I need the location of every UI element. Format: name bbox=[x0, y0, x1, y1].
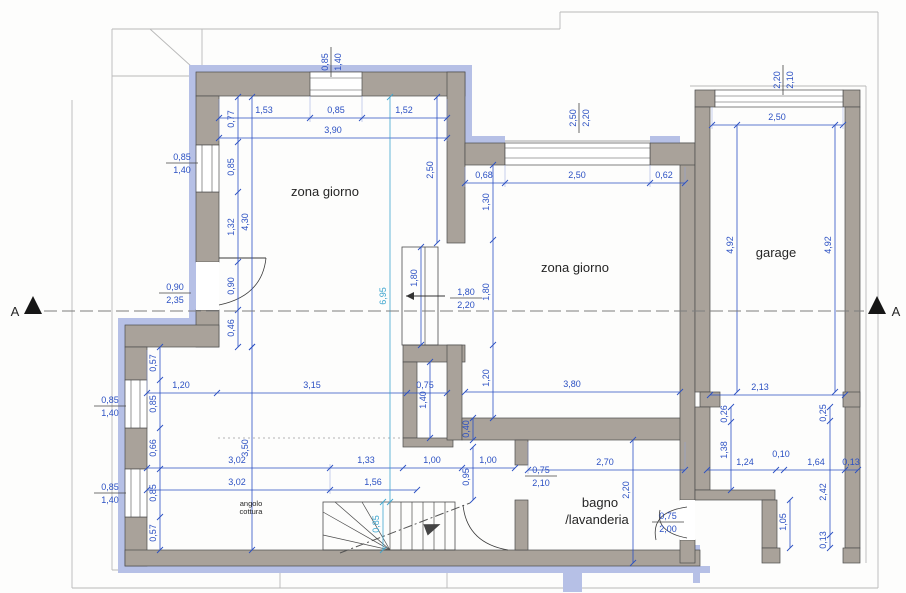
dim-label: 3,15 bbox=[303, 380, 321, 390]
insulation-band bbox=[563, 566, 582, 592]
dim-fraction-bottom: 2,00 bbox=[659, 524, 677, 534]
window bbox=[715, 90, 843, 107]
dim-label: 2,50 bbox=[568, 170, 586, 180]
dim-fraction-bottom: 2,10 bbox=[785, 71, 795, 89]
section-letter-left: A bbox=[11, 304, 20, 319]
wall bbox=[125, 347, 147, 380]
wall bbox=[515, 500, 528, 550]
window bbox=[125, 469, 147, 517]
wall bbox=[700, 392, 720, 407]
dim-label: 0,68 bbox=[475, 170, 493, 180]
dim-label: 3,90 bbox=[324, 125, 342, 135]
dim-label: 1,64 bbox=[807, 457, 825, 467]
dim-label: 0,75 bbox=[416, 380, 434, 390]
wall bbox=[680, 143, 695, 500]
wall bbox=[695, 490, 775, 500]
passage-arrow-icon bbox=[406, 292, 414, 300]
dim-label: 0,85 bbox=[226, 158, 236, 176]
wall bbox=[695, 107, 710, 392]
floor-plan-canvas: 1,530,851,523,900,682,500,622,501,203,15… bbox=[0, 0, 906, 593]
dim-label: 6,95 bbox=[378, 287, 388, 305]
dim-label: 0,77 bbox=[226, 110, 236, 128]
dim-fraction-top: 2,20 bbox=[772, 71, 782, 89]
dim-label: 0,85 bbox=[148, 484, 158, 502]
door-swing-arc bbox=[463, 505, 508, 550]
window bbox=[196, 145, 219, 192]
dim-label: 2,13 bbox=[751, 382, 769, 392]
dim-label: 4,30 bbox=[240, 213, 250, 231]
room-label: zona giorno bbox=[541, 260, 609, 275]
dim-fraction-bottom: 1,40 bbox=[101, 495, 119, 505]
stair-winder-line bbox=[335, 502, 390, 550]
dim-label: 0,62 bbox=[655, 170, 673, 180]
dim-label: 2,50 bbox=[425, 161, 435, 179]
dim-label: 3,80 bbox=[563, 379, 581, 389]
dim-label: 1,32 bbox=[226, 218, 236, 236]
wall bbox=[680, 540, 695, 563]
insulation-band bbox=[118, 566, 710, 573]
wall bbox=[196, 192, 219, 262]
dim-label: 1,52 bbox=[395, 105, 413, 115]
door-opening bbox=[680, 500, 695, 540]
room-label: garage bbox=[756, 245, 796, 260]
dim-fraction-bottom: 2,20 bbox=[457, 300, 475, 310]
stair-direction-arrow-icon bbox=[423, 519, 442, 536]
dim-fraction-bottom: 1,40 bbox=[101, 408, 119, 418]
wall bbox=[465, 143, 505, 165]
dim-fraction-top: 1,80 bbox=[457, 287, 475, 297]
stair-direction-line bbox=[340, 503, 470, 553]
dim-label: 2,20 bbox=[621, 481, 631, 499]
dim-label: 1,38 bbox=[719, 441, 729, 459]
dim-fraction-bottom: 2,20 bbox=[581, 109, 591, 127]
room-label: /lavanderia bbox=[565, 512, 629, 527]
dim-label: 1,05 bbox=[778, 513, 788, 531]
wall bbox=[515, 440, 528, 465]
dim-fraction-top: 0,85 bbox=[101, 395, 119, 405]
dim-label: 0,85 bbox=[327, 105, 345, 115]
dim-label: 1,33 bbox=[357, 455, 375, 465]
dim-label: 1,20 bbox=[481, 369, 491, 387]
wall bbox=[845, 107, 860, 548]
wall bbox=[843, 548, 860, 563]
dim-label: 2,42 bbox=[818, 483, 828, 501]
dim-fraction-top: 0,90 bbox=[166, 282, 184, 292]
room-label: zona giorno bbox=[291, 184, 359, 199]
wall bbox=[843, 90, 860, 107]
dim-label: 0,85 bbox=[371, 515, 381, 533]
dim-label: 4,92 bbox=[823, 236, 833, 254]
dim-label: 2,70 bbox=[596, 457, 614, 467]
room-label: cottura bbox=[240, 507, 264, 516]
window bbox=[310, 72, 362, 96]
wall bbox=[762, 548, 780, 563]
wall bbox=[125, 325, 219, 347]
dim-label: 0,10 bbox=[772, 449, 790, 459]
dim-label: 0,85 bbox=[148, 395, 158, 413]
insulation-band bbox=[650, 136, 680, 143]
wall bbox=[403, 362, 417, 438]
wall bbox=[447, 72, 465, 243]
wall bbox=[462, 418, 693, 440]
wall bbox=[125, 550, 700, 566]
dim-label: 0,13 bbox=[818, 531, 828, 549]
window bbox=[505, 143, 650, 165]
dim-label: 1,00 bbox=[479, 455, 497, 465]
dim-label: 0,57 bbox=[148, 524, 158, 542]
wall bbox=[125, 428, 147, 469]
dim-label: 1,80 bbox=[481, 283, 491, 301]
window bbox=[125, 380, 147, 428]
dim-fraction-bottom: 1,40 bbox=[173, 165, 191, 175]
insulation-band bbox=[465, 65, 472, 143]
section-letter-right: A bbox=[892, 304, 901, 319]
dim-label: 1,00 bbox=[423, 455, 441, 465]
room-label: bagno bbox=[582, 495, 618, 510]
dim-label: 1,20 bbox=[172, 380, 190, 390]
section-marker-left-icon bbox=[24, 296, 42, 314]
wall bbox=[447, 345, 462, 440]
insulation-band bbox=[118, 318, 125, 573]
dim-label: 0,46 bbox=[226, 319, 236, 337]
dim-label: 0,25 bbox=[818, 404, 828, 422]
dim-label: 1,40 bbox=[418, 391, 428, 409]
dim-label: 1,24 bbox=[736, 457, 754, 467]
floor-plan-page: 1,530,851,523,900,682,500,622,501,203,15… bbox=[0, 0, 906, 593]
dim-label: 3,50 bbox=[240, 439, 250, 457]
dim-fraction-top: 0,85 bbox=[101, 482, 119, 492]
dim-fraction-top: 0,75 bbox=[532, 465, 550, 475]
dim-label: 1,30 bbox=[481, 193, 491, 211]
dim-fraction-bottom: 2,35 bbox=[166, 295, 184, 305]
dim-fraction-top: 2,50 bbox=[568, 109, 578, 127]
wall bbox=[695, 90, 715, 107]
dim-label: 0,66 bbox=[148, 439, 158, 457]
dim-label: 1,80 bbox=[409, 269, 419, 287]
wall bbox=[196, 96, 219, 145]
wall bbox=[403, 438, 453, 447]
dim-label: 0,57 bbox=[148, 354, 158, 372]
dim-label: 0,26 bbox=[719, 405, 729, 423]
dim-label: 0,95 bbox=[461, 468, 471, 486]
insulation-band bbox=[189, 65, 472, 72]
insulation-band bbox=[465, 136, 505, 143]
dim-label: 1,56 bbox=[364, 477, 382, 487]
insulation-band bbox=[118, 318, 196, 325]
wall bbox=[762, 500, 777, 548]
dim-label: 2,50 bbox=[768, 112, 786, 122]
dim-fraction-top: 0,75 bbox=[659, 511, 677, 521]
dim-fraction-top: 0,85 bbox=[320, 53, 330, 71]
dim-fraction-bottom: 1,40 bbox=[333, 53, 343, 71]
dim-label: 0,90 bbox=[226, 277, 236, 295]
dim-label: 0,13 bbox=[842, 457, 860, 467]
dim-label: 3,02 bbox=[228, 477, 246, 487]
dim-fraction-top: 0,85 bbox=[173, 152, 191, 162]
wall bbox=[695, 407, 710, 490]
dim-label: 1,53 bbox=[255, 105, 273, 115]
door-opening bbox=[196, 262, 219, 310]
section-marker-right-icon bbox=[868, 296, 886, 314]
wall bbox=[650, 143, 695, 165]
dim-label: 0,40 bbox=[461, 420, 471, 438]
dim-label: 4,92 bbox=[725, 236, 735, 254]
insulation-band bbox=[189, 65, 196, 330]
dim-fraction-bottom: 2,10 bbox=[532, 478, 550, 488]
